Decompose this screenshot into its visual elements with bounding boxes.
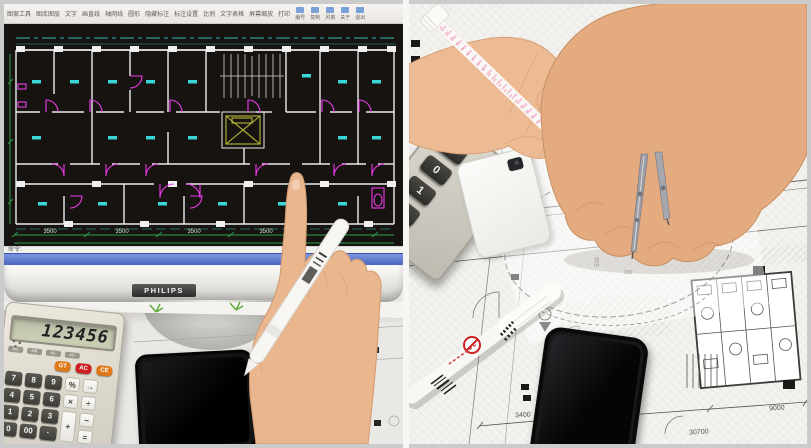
about-icon: [341, 7, 349, 13]
exit-icon: [356, 7, 364, 13]
cad-screen: 3500 3500 3500 3500 3500 56908 7800: [4, 24, 403, 246]
menu-icon-label: 关于: [340, 14, 350, 21]
menu-item[interactable]: 隐藏标注: [145, 9, 169, 18]
phone-screen: [142, 356, 250, 444]
monitor-bezel: PHILIPS: [4, 265, 403, 302]
dim-label: 3500: [331, 229, 345, 235]
dim-label: 3500: [259, 229, 273, 235]
menu-icon-label: 退出: [355, 14, 365, 21]
op-key[interactable]: ×: [62, 394, 78, 409]
cad-menu-bar: 图案工具 图库图层 文字 画直线 轴网线 圆形 隐藏标注 标注设置 比例 文字表…: [4, 4, 403, 24]
menu-icon-item[interactable]: 风格: [325, 7, 335, 21]
menu-icon-label: 编号: [295, 14, 305, 21]
menu-item[interactable]: 轴网线: [105, 9, 123, 18]
digit-key[interactable]: 1: [4, 404, 19, 420]
copy-tool-icon: [311, 7, 319, 13]
op-key[interactable]: →: [82, 379, 98, 394]
menu-item[interactable]: 图库图层: [36, 9, 60, 18]
digit-key[interactable]: 5: [23, 389, 41, 405]
photo-collage: 图案工具 图库图层 文字 画直线 轴网线 圆形 隐藏标注 标注设置 比例 文字表…: [0, 0, 811, 448]
minus-key[interactable]: −: [78, 412, 94, 427]
menu-item[interactable]: 文字表格: [220, 9, 244, 18]
menu-item[interactable]: 文字: [65, 9, 77, 18]
calculator-display: 123456: [9, 315, 117, 352]
menu-icon-item[interactable]: 退出: [355, 7, 365, 21]
op-key[interactable]: ÷: [80, 396, 96, 411]
calculator-display-value: 123456: [41, 321, 110, 348]
memory-key[interactable]: M+: [65, 352, 81, 360]
menu-item[interactable]: 画直线: [82, 9, 100, 18]
dim-label: 3500: [187, 229, 201, 235]
gt-key[interactable]: GT: [54, 361, 71, 373]
menu-item[interactable]: 标注设置: [174, 9, 198, 18]
digit-key[interactable]: 7: [4, 370, 22, 386]
philips-logo: PHILIPS: [132, 284, 196, 297]
right-photo-blueprint-work: 3400 9000 30700 2000 500 200 0 0 1 2: [409, 4, 807, 444]
menu-item[interactable]: 屏幕缩放: [249, 9, 273, 18]
digit-key[interactable]: 6: [42, 392, 60, 408]
digit-key[interactable]: 0: [4, 421, 17, 437]
op-key[interactable]: %: [64, 377, 80, 392]
digit-key[interactable]: 8: [24, 373, 42, 389]
menu-icon-item[interactable]: 编号: [295, 7, 305, 21]
speaker-dots-icon: [10, 339, 25, 348]
memory-key[interactable]: M−: [46, 350, 62, 358]
menu-icon-label: 复制: [310, 14, 320, 21]
phone-screen: [536, 333, 642, 444]
number-tool-icon: [296, 7, 304, 13]
digit-key[interactable]: 2: [21, 406, 39, 422]
cad-command-line[interactable]: 命令:: [4, 246, 403, 253]
smartphone-on-blueprint: [528, 325, 650, 444]
digit-key[interactable]: 9: [44, 375, 62, 391]
digit-key[interactable]: 3: [41, 408, 59, 424]
digit-key[interactable]: ·: [39, 425, 57, 441]
plus-key[interactable]: +: [59, 411, 77, 443]
menu-icon-item[interactable]: 关于: [340, 7, 350, 21]
menu-icon-item[interactable]: 复制: [310, 7, 320, 21]
dim-label: 3500: [43, 229, 57, 235]
digit-key[interactable]: 00: [19, 423, 37, 439]
memory-key[interactable]: MR: [27, 348, 43, 356]
smartphone-on-desk: [134, 349, 257, 444]
cad-taskbar[interactable]: [4, 253, 403, 265]
equals-key[interactable]: =: [77, 429, 93, 444]
menu-item[interactable]: 打印: [278, 9, 290, 18]
dim-label: 3500: [115, 229, 129, 235]
style-tool-icon: [326, 7, 334, 13]
menu-item[interactable]: 圆形: [128, 9, 140, 18]
calculator: 123456 MC MR M− M+ GT AC CE 7 8 9 % → 4 …: [4, 301, 126, 444]
cad-floorplan-drawing: 3500 3500 3500 3500 3500 56908 7800: [4, 24, 403, 246]
ce-key[interactable]: CE: [96, 365, 113, 377]
left-photo-cad-workstation: 图案工具 图库图层 文字 画直线 轴网线 圆形 隐藏标注 标注设置 比例 文字表…: [4, 4, 403, 444]
ac-key[interactable]: AC: [75, 363, 92, 375]
menu-item[interactable]: 图案工具: [7, 9, 31, 18]
digit-key[interactable]: 4: [4, 387, 21, 403]
menu-icon-label: 风格: [325, 14, 335, 21]
menu-item[interactable]: 比例: [203, 9, 215, 18]
